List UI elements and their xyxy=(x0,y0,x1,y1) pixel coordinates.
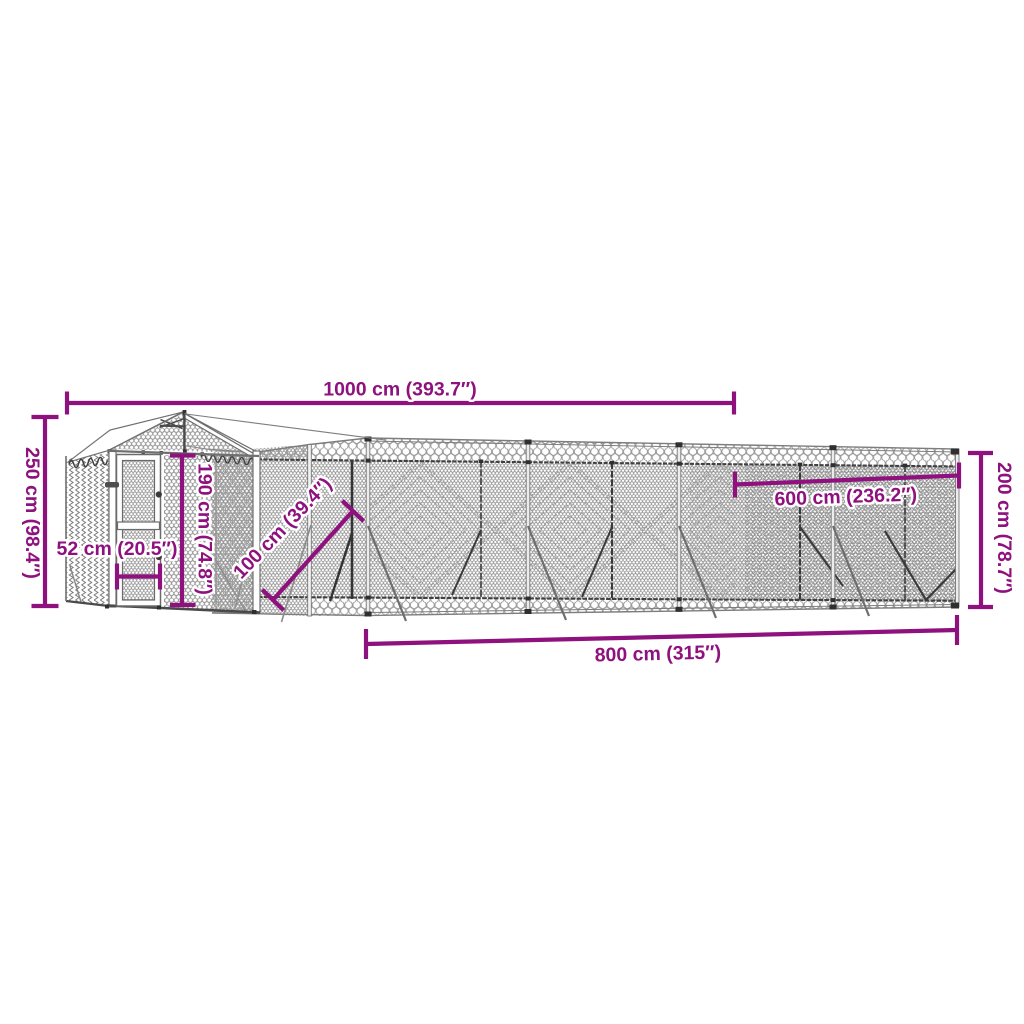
svg-text:800 cm (315″): 800 cm (315″) xyxy=(594,641,721,666)
svg-text:190 cm (74.8″): 190 cm (74.8″) xyxy=(194,463,216,595)
svg-text:52 cm (20.5″): 52 cm (20.5″) xyxy=(57,538,178,560)
svg-text:250 cm (98.4″): 250 cm (98.4″) xyxy=(21,447,43,579)
svg-text:200 cm (78.7″): 200 cm (78.7″) xyxy=(993,462,1015,594)
svg-text:1000 cm (393.7″): 1000 cm (393.7″) xyxy=(323,379,477,401)
